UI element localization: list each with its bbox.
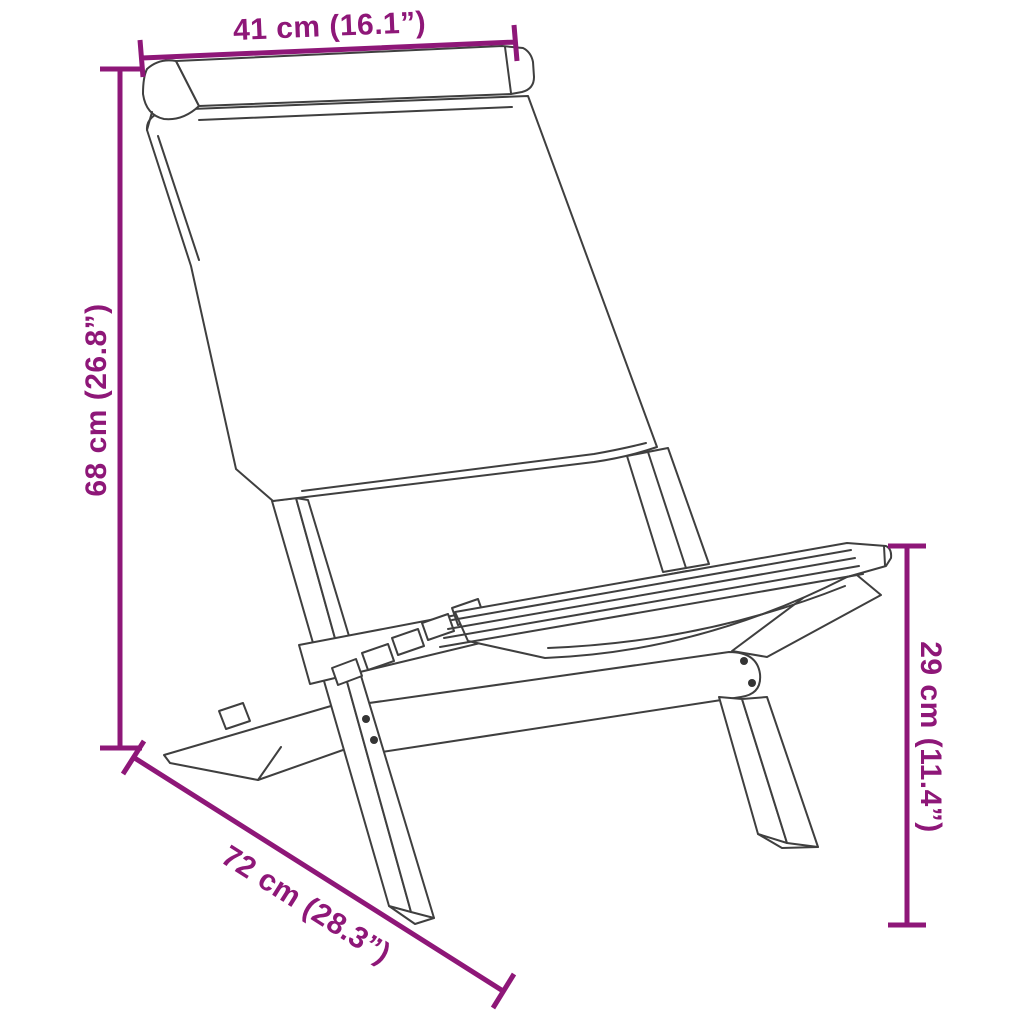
screw-front-joint-2 xyxy=(370,736,378,744)
dimension-left-height: 68 cm (26.8”) xyxy=(80,69,142,748)
dimension-left-height-label: 68 cm (26.8”) xyxy=(80,303,113,496)
seat-end-cap-line xyxy=(884,546,885,565)
screw-rear-bracket-1 xyxy=(740,657,748,665)
runner-block xyxy=(219,703,250,729)
backrest-fabric xyxy=(147,96,657,501)
dimension-bottom-depth: 72 cm (28.3”) xyxy=(123,741,514,1008)
folding-chair-line-art xyxy=(143,46,891,924)
product-dimension-diagram: 41 cm (16.1”) 68 cm (26.8”) 72 cm (28.3”… xyxy=(0,0,1024,1024)
runner-blade xyxy=(164,701,360,780)
screw-front-joint-1 xyxy=(362,715,370,723)
screw-rear-bracket-2 xyxy=(748,679,756,687)
cross-rail xyxy=(348,652,760,756)
dimension-top-width-label: 41 cm (16.1”) xyxy=(232,6,427,47)
diagram-canvas: 41 cm (16.1”) 68 cm (26.8”) 72 cm (28.3”… xyxy=(0,0,1024,1024)
dimension-right-seat-height: 29 cm (11.4”) xyxy=(888,546,947,925)
dimension-bottom-depth-line xyxy=(123,741,514,1008)
dimension-right-seat-height-label: 29 cm (11.4”) xyxy=(914,641,947,833)
